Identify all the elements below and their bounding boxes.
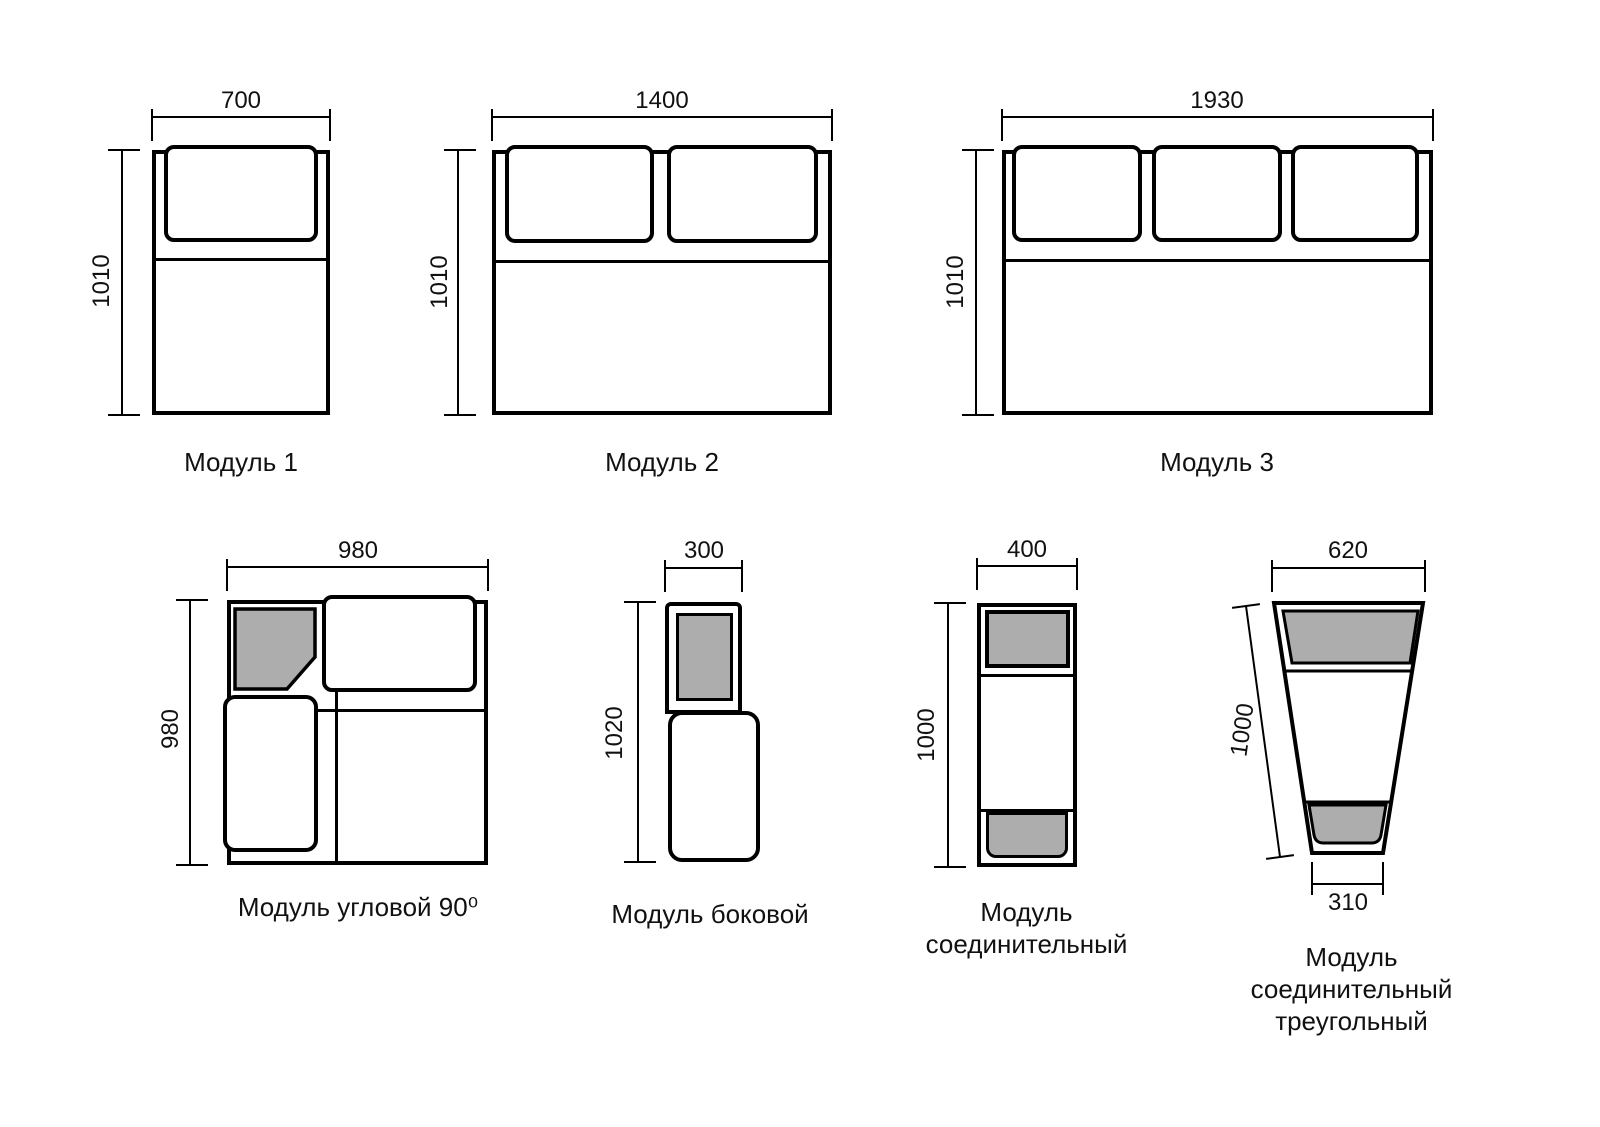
corner-module-width-dimension-line <box>227 566 488 568</box>
module-1-back-cushion <box>164 145 318 242</box>
triangle-module-width-dimension-line <box>1272 567 1425 569</box>
triangle-module-bottom-width-value: 310 <box>1288 888 1408 918</box>
module-3-back-cushion-left <box>1012 145 1142 242</box>
module-3-height-value: 1010 <box>941 222 971 342</box>
module-1-height-dimension-line <box>121 150 123 415</box>
corner-pad-shape <box>235 609 315 689</box>
corner-module-vertical-divider <box>335 692 338 865</box>
corner-module-width-value: 980 <box>298 536 418 566</box>
connector-module-upper-divider <box>977 674 1077 677</box>
module-3-label: Модуль 3 <box>1117 446 1317 478</box>
module-2-back-cushion-right <box>667 145 818 243</box>
side-module-width-dimension-line <box>665 567 742 569</box>
corner-module-back-cushion <box>322 595 477 692</box>
side-module-height-value: 1020 <box>600 673 630 793</box>
triangle-module-label: Модуль соединительный треугольный <box>1244 941 1459 1037</box>
connector-module-top-pad <box>985 610 1070 668</box>
module-1-height-value: 1010 <box>87 221 117 341</box>
module-3-seat-divider <box>1002 259 1433 262</box>
module-3-back-cushion-right <box>1291 145 1419 242</box>
side-module-armrest-pad <box>676 613 733 701</box>
module-1-seat-divider <box>152 258 330 261</box>
module-2-height-dimension-line <box>457 150 459 415</box>
corner-module-corner-pad <box>232 606 318 692</box>
furniture-modules-diagram: 700 1010 Модуль 1 1400 1010 Модуль 2 193… <box>0 0 1600 1127</box>
connector-module-width-dimension-line <box>977 565 1077 567</box>
module-1-label: Модуль 1 <box>141 446 341 478</box>
side-module-seat <box>668 711 760 862</box>
module-2-label: Модуль 2 <box>562 446 762 478</box>
module-2-back-cushion-left <box>505 145 654 243</box>
side-module-label: Модуль боковой <box>585 898 835 930</box>
module-2-width-dimension-line <box>492 116 832 118</box>
side-module-height-dimension-line <box>637 602 639 862</box>
connector-module-bottom-pad <box>986 812 1068 858</box>
module-3-width-dimension-line <box>1002 116 1433 118</box>
module-2-seat-divider <box>492 260 832 263</box>
connector-module-label: Модуль соединительный <box>919 896 1134 960</box>
triangle-module-width-value: 620 <box>1288 536 1408 566</box>
connector-module-width-value: 400 <box>967 535 1087 565</box>
connector-module-height-dimension-line <box>947 603 949 867</box>
corner-module-seat-divider <box>318 709 488 712</box>
triangle-module-bottom-pad <box>1309 805 1386 843</box>
corner-module-side-cushion <box>223 695 318 852</box>
side-module-width-value: 300 <box>644 536 764 566</box>
connector-module-height-value: 1000 <box>912 675 942 795</box>
module-3-width-value: 1930 <box>1157 86 1277 116</box>
module-1-width-value: 700 <box>181 86 301 116</box>
corner-module-height-value: 980 <box>156 669 186 789</box>
module-3-height-dimension-line <box>975 150 977 415</box>
module-2-width-value: 1400 <box>602 86 722 116</box>
corner-module-label: Модуль угловой 90⁰ <box>208 891 508 923</box>
module-3-back-cushion-middle <box>1152 145 1282 242</box>
triangle-module-top-pad <box>1283 611 1418 663</box>
module-1-width-dimension-line <box>152 116 330 118</box>
module-2-height-value: 1010 <box>425 222 455 342</box>
corner-module-height-dimension-line <box>189 600 191 865</box>
